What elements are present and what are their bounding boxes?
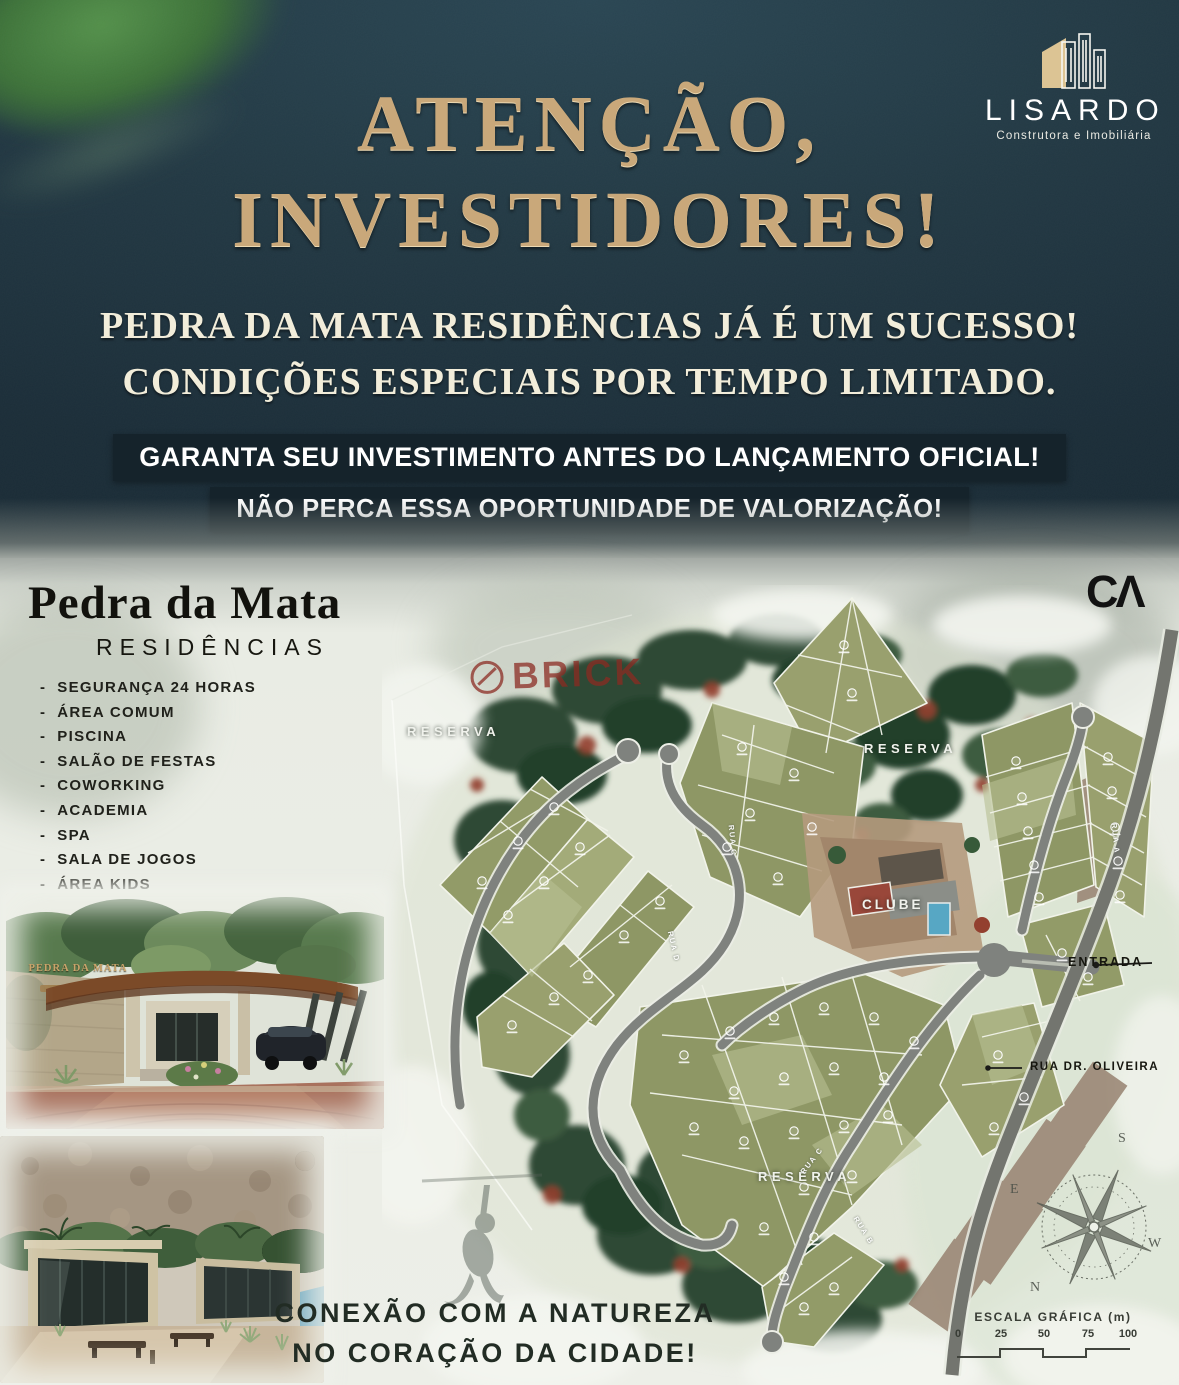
scale-tick: 25 [995, 1328, 1007, 1340]
headline-line1: ATENÇÃO, [0, 80, 1179, 170]
clube-label: CLUBE [862, 897, 924, 912]
banner-line1: GARANTA SEU INVESTIMENTO ANTES DO LANÇAM… [113, 434, 1066, 481]
amenity-item: COWORKING [40, 774, 378, 799]
entrance-gate-photo [6, 893, 384, 1129]
amenity-item: SALÃO DE FESTAS [40, 750, 378, 775]
amenity-item: PISCINA [40, 725, 378, 750]
amenity-item: ÁREA COMUM [40, 701, 378, 726]
reserva-label-west: RESERVA [407, 724, 500, 739]
scale-tick: 0 [955, 1328, 961, 1340]
scale-title: ESCALA GRÁFICA (m) [958, 1310, 1148, 1324]
project-subtitle: RESIDÊNCIAS [96, 634, 329, 661]
brick-watermark: BRICK [467, 651, 645, 699]
brick-logo-icon [467, 658, 506, 697]
compass-e: E [1010, 1182, 1019, 1198]
banner-line1-wrap: GARANTA SEU INVESTIMENTO ANTES DO LANÇAM… [0, 434, 1179, 481]
section-fade [0, 498, 1179, 560]
rua-dr-oliveira-label: RUA DR. OLIVEIRA [1030, 1061, 1159, 1073]
subheadline-line1: PEDRA DA MATA RESIDÊNCIAS JÁ É UM SUCESS… [0, 304, 1179, 348]
amenity-item: SEGURANÇA 24 HORAS [40, 676, 378, 701]
amenity-item: ACADEMIA [40, 799, 378, 824]
scale-tick: 75 [1082, 1328, 1094, 1340]
tagline-line2: NO CORAÇÃO DA CIDADE! [270, 1333, 720, 1373]
masterplan-map [382, 585, 1179, 1385]
tagline-line1: CONEXÃO COM A NATUREZA [270, 1293, 720, 1333]
compass-w: W [1148, 1236, 1161, 1252]
scale-tick: 100 [1119, 1328, 1137, 1340]
ca-logo: CΛ [1086, 566, 1143, 618]
compass-n: N [1030, 1280, 1040, 1296]
compass-s: S [1118, 1131, 1126, 1147]
reserva-label-east: RESERVA [864, 741, 957, 756]
subheadline-line2: CONDIÇÕES ESPECIAIS POR TEMPO LIMITADO. [0, 360, 1179, 404]
center-garden [166, 1061, 238, 1089]
entrada-label: ENTRADA [1068, 955, 1143, 969]
scale-tick: 50 [1038, 1328, 1050, 1340]
headline-line2: INVESTIDORES! [0, 176, 1179, 266]
project-title: Pedra da Mata [28, 576, 341, 630]
gate-sign-text: PEDRA DA MATA [18, 963, 138, 974]
entrance-gate-art [6, 893, 384, 1129]
hero-section: LISARDO Construtora e Imobiliária ATENÇÃ… [0, 0, 1179, 560]
amenity-item: SALA DE JOGOS [40, 848, 378, 873]
footer-tagline: CONEXÃO COM A NATUREZA NO CORAÇÃO DA CID… [270, 1293, 720, 1373]
masterplan-section: RESERVA RESERVA RESERVA CLUBE ENTRADA RU… [0, 558, 1179, 1385]
flyer: LISARDO Construtora e Imobiliária ATENÇÃ… [0, 0, 1179, 1385]
amenity-item: SPA [40, 824, 378, 849]
brick-watermark-text: BRICK [511, 651, 645, 698]
